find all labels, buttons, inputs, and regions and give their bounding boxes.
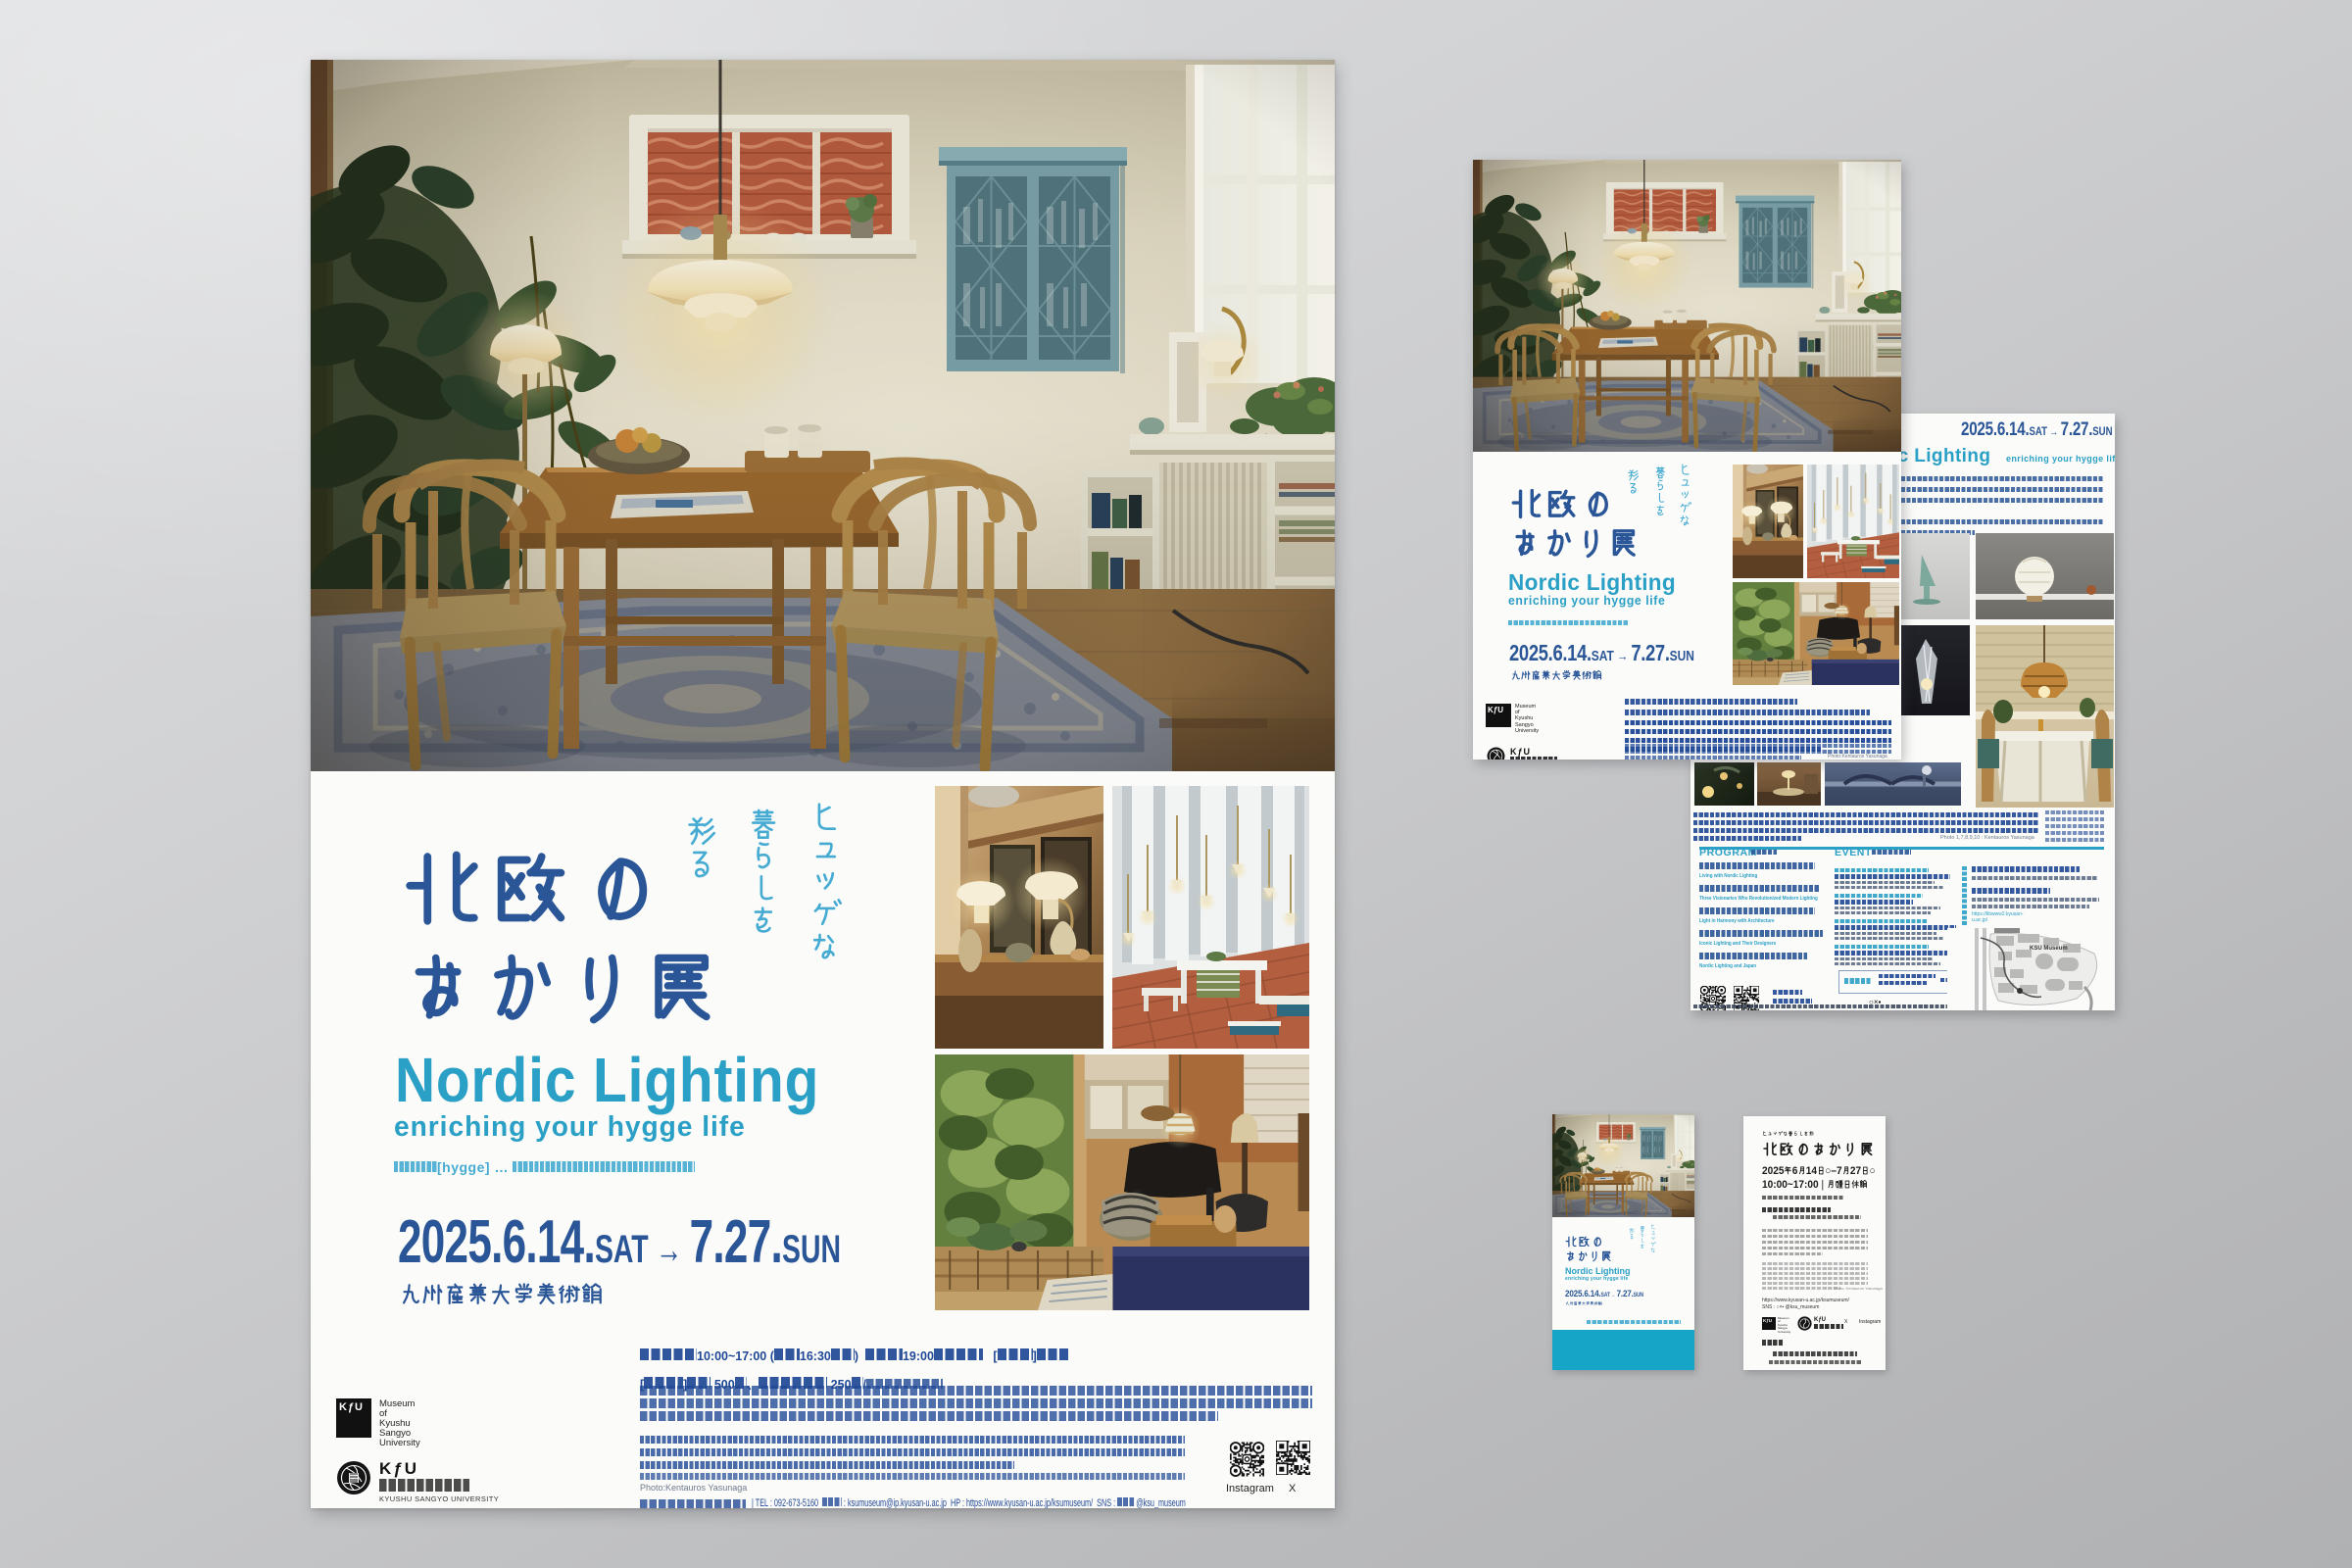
svg-text:KSU Museum: KSU Museum — [2030, 946, 2068, 952]
